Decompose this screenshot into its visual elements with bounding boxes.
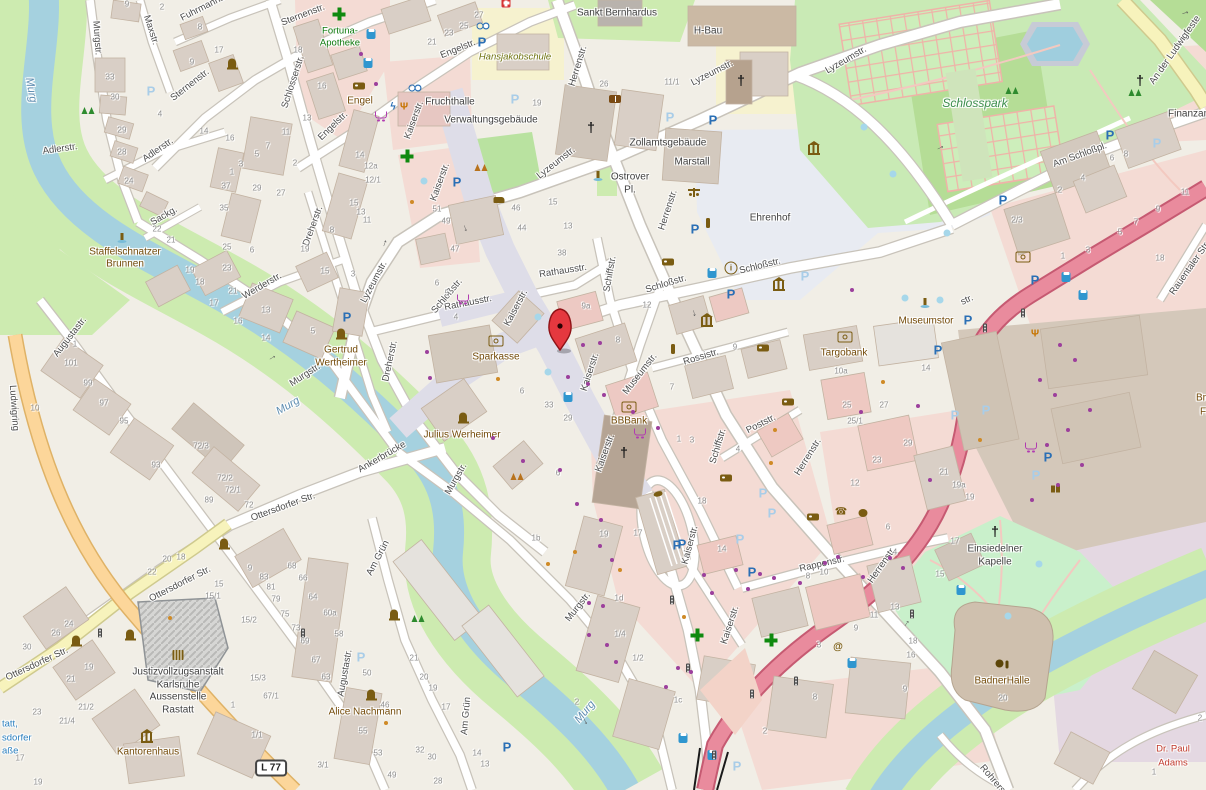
map-base-tiles bbox=[0, 0, 1206, 790]
badnerhalle-building bbox=[951, 602, 1053, 711]
map-canvas[interactable]: Murgstr.Maxstr.Fuhrmannstr.Sternenstr.St… bbox=[0, 0, 1206, 790]
road-shield-l77: L 77 bbox=[255, 760, 287, 777]
